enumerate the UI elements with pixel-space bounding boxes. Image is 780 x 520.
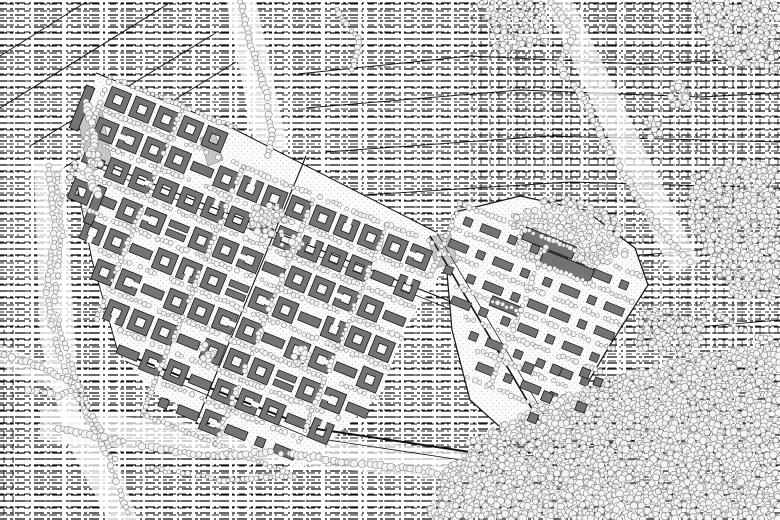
street-tree <box>188 295 192 299</box>
forest-tree <box>729 379 734 384</box>
forest-tree <box>542 450 550 458</box>
forest-tree <box>536 35 540 39</box>
forest-tree <box>534 9 539 14</box>
street-tree <box>148 198 153 203</box>
street-tree <box>235 161 239 165</box>
hedgerow-tree <box>343 21 349 27</box>
forest-tree <box>679 321 685 327</box>
street-tree <box>320 384 324 388</box>
street-tree <box>521 304 525 308</box>
hedgerow-tree <box>639 202 646 209</box>
forest-tree <box>557 503 564 510</box>
forest-tree <box>757 498 762 503</box>
street-tree <box>543 377 547 381</box>
forest-tree <box>612 410 617 415</box>
street-tree <box>357 388 363 394</box>
forest-tree <box>774 288 780 294</box>
street-tree <box>153 201 157 205</box>
street-tree <box>298 400 303 405</box>
grove-tree <box>291 234 296 239</box>
forest-tree <box>731 254 738 261</box>
forest-tree <box>752 237 758 243</box>
hedgerow-tree <box>180 471 185 476</box>
hedgerow-tree <box>55 273 60 278</box>
forest-tree <box>697 371 703 377</box>
forest-tree <box>672 515 679 520</box>
hedgerow-tree <box>354 44 360 50</box>
street-tree <box>304 424 310 430</box>
street-tree <box>219 404 224 409</box>
forest-tree <box>751 362 756 367</box>
masterplan-screenshot <box>0 0 780 520</box>
street-tree <box>77 169 81 173</box>
hedgerow-tree <box>56 322 60 326</box>
forest-tree <box>505 436 510 441</box>
street-tree <box>373 361 378 366</box>
forest-tree <box>775 375 780 382</box>
hedgerow-tree <box>83 409 89 415</box>
street-tree <box>284 265 288 269</box>
forest-tree <box>567 233 574 240</box>
forest-tree <box>767 469 772 474</box>
street-tree <box>501 302 505 306</box>
forest-tree <box>504 13 509 18</box>
grove-tree <box>656 130 662 136</box>
street-tree <box>534 372 537 375</box>
forest-tree <box>457 466 461 470</box>
street-tree <box>327 363 333 369</box>
forest-tree <box>760 51 765 56</box>
forest-tree <box>755 429 761 435</box>
hedgerow-tree <box>83 396 88 401</box>
street-tree <box>98 178 102 182</box>
forest-tree <box>561 470 569 478</box>
forest-tree <box>653 344 659 350</box>
street-tree <box>581 252 585 256</box>
street-tree <box>531 232 535 236</box>
forest-tree <box>716 372 721 377</box>
street-tree <box>213 232 217 236</box>
street-tree <box>250 168 254 172</box>
street-tree <box>306 405 310 409</box>
street-tree <box>244 273 249 278</box>
hedgerow-tree <box>58 238 62 242</box>
street-tree <box>365 268 371 274</box>
forest-tree <box>626 474 633 481</box>
forest-tree <box>543 29 548 34</box>
forest-tree <box>548 219 552 223</box>
street-tree <box>380 235 384 239</box>
street-tree <box>494 244 499 249</box>
forest-tree <box>518 12 524 18</box>
street-tree <box>518 308 523 313</box>
street-tree <box>291 434 295 438</box>
street-tree <box>226 300 230 304</box>
grove-tree <box>648 116 654 122</box>
street-tree <box>560 328 565 333</box>
hedgerow-tree <box>63 345 69 351</box>
forest-tree <box>540 406 546 412</box>
hedgerow-tree <box>66 358 70 362</box>
forest-tree <box>542 508 546 512</box>
forest-tree <box>775 190 780 197</box>
forest-tree <box>677 351 683 357</box>
forest-tree <box>764 31 769 36</box>
street-tree <box>266 306 272 312</box>
forest-tree <box>766 178 771 183</box>
street-tree <box>461 257 465 261</box>
street-tree <box>298 227 303 232</box>
forest-tree <box>776 503 780 509</box>
forest-tree <box>525 30 529 34</box>
street-tree <box>133 220 137 224</box>
forest-tree <box>776 231 780 235</box>
street-tree <box>230 232 234 236</box>
forest-tree <box>679 476 684 481</box>
forest-tree <box>540 15 546 21</box>
street-tree <box>150 342 155 347</box>
forest-tree <box>774 279 779 284</box>
forest-tree <box>547 474 554 481</box>
forest-tree <box>641 420 646 425</box>
street-tree <box>336 415 341 420</box>
forest-tree <box>447 508 452 513</box>
street-tree <box>410 267 415 272</box>
street-tree <box>135 228 139 232</box>
forest-tree <box>768 374 774 380</box>
street-tree <box>611 346 616 351</box>
forest-tree <box>700 208 705 213</box>
forest-tree <box>617 383 623 389</box>
forest-tree <box>565 464 571 470</box>
street-tree <box>538 345 542 349</box>
street-tree <box>287 289 292 294</box>
street-tree <box>122 80 128 86</box>
street-tree <box>227 266 232 271</box>
forest-tree <box>577 515 583 520</box>
hedgerow-tree <box>123 504 128 509</box>
hedgerow-tree <box>607 149 613 155</box>
forest-tree <box>554 480 559 485</box>
street-tree <box>455 211 459 215</box>
street-tree <box>295 186 299 190</box>
street-tree <box>593 256 598 261</box>
forest-tree <box>744 20 749 25</box>
street-tree <box>464 315 468 319</box>
forest-tree <box>617 453 623 459</box>
street-tree <box>259 384 265 390</box>
forest-tree <box>716 257 722 263</box>
street-tree <box>526 400 530 404</box>
street-tree <box>341 332 345 336</box>
street-tree <box>275 289 280 294</box>
street-tree <box>495 300 500 305</box>
street-tree <box>358 353 363 358</box>
street-tree <box>267 464 272 469</box>
forest-tree <box>640 512 645 517</box>
street-tree <box>197 270 201 274</box>
street-tree <box>223 228 227 232</box>
forest-tree <box>752 255 758 261</box>
street-tree <box>220 425 225 430</box>
forest-tree <box>683 347 689 353</box>
forest-tree <box>762 36 768 42</box>
forest-tree <box>640 385 645 390</box>
forest-tree <box>722 50 726 54</box>
hedgerow-tree <box>229 477 234 482</box>
forest-tree <box>588 470 593 475</box>
forest-tree <box>519 514 527 520</box>
street-tree <box>469 233 473 237</box>
grove-tree <box>281 217 287 223</box>
forest-tree <box>746 514 752 520</box>
street-tree <box>213 441 217 445</box>
street-tree <box>206 221 210 225</box>
street-tree <box>160 133 163 136</box>
forest-tree <box>451 461 457 467</box>
forest-tree <box>728 204 732 208</box>
forest-tree <box>749 273 754 278</box>
street-tree <box>270 298 274 302</box>
forest-tree <box>562 485 566 489</box>
forest-tree <box>443 495 450 502</box>
street-tree <box>638 273 643 278</box>
street-tree <box>357 248 361 252</box>
street-tree <box>174 425 179 430</box>
forest-tree <box>759 62 764 67</box>
street-tree <box>362 281 366 285</box>
forest-tree <box>474 444 481 451</box>
forest-tree <box>768 187 773 192</box>
street-tree <box>436 251 442 257</box>
forest-tree <box>580 236 586 242</box>
hedgerow-tree <box>264 94 270 100</box>
street-tree <box>477 237 481 241</box>
forest-tree <box>762 257 766 261</box>
forest-tree <box>769 236 773 240</box>
forest-tree <box>497 0 502 5</box>
forest-tree <box>552 195 557 200</box>
street-tree <box>102 180 107 185</box>
street-tree <box>457 201 462 206</box>
forest-tree <box>667 489 673 495</box>
forest-tree <box>747 397 754 404</box>
hedgerow-tree <box>196 452 202 458</box>
street-tree <box>129 155 134 160</box>
hedgerow-tree <box>734 326 739 331</box>
forest-tree <box>520 438 527 445</box>
hedgerow-tree <box>387 463 394 470</box>
forest-tree <box>666 401 672 407</box>
forest-tree <box>750 369 756 375</box>
forest-tree <box>624 425 628 429</box>
forest-tree <box>490 0 495 5</box>
forest-tree <box>655 489 661 495</box>
street-tree <box>486 297 491 302</box>
street-tree <box>345 207 349 211</box>
hedgerow-tree <box>57 318 62 323</box>
hedgerow-tree <box>267 448 273 454</box>
street-tree <box>494 367 499 372</box>
street-tree <box>146 303 151 308</box>
forest-tree <box>696 193 700 197</box>
forest-tree <box>554 514 558 518</box>
hedgerow-tree <box>57 206 61 210</box>
street-tree <box>578 333 582 337</box>
street-tree <box>255 340 259 344</box>
street-tree <box>141 408 146 413</box>
forest-tree <box>519 40 525 46</box>
street-tree <box>180 282 184 286</box>
street-tree <box>278 282 282 286</box>
forest-tree <box>599 224 603 228</box>
street-tree <box>375 395 379 399</box>
street-tree <box>307 370 311 374</box>
forest-tree <box>675 492 679 496</box>
forest-tree <box>493 465 498 470</box>
forest-tree <box>431 500 436 505</box>
forest-tree <box>642 345 648 351</box>
street-tree <box>205 364 210 369</box>
forest-tree <box>540 466 548 474</box>
street-tree <box>165 144 169 148</box>
street-tree <box>206 438 211 443</box>
street-tree <box>173 173 178 178</box>
street-tree <box>383 293 387 297</box>
street-tree <box>152 176 156 180</box>
street-tree <box>498 353 503 358</box>
street-tree <box>196 324 200 328</box>
forest-tree <box>611 443 616 448</box>
forest-tree <box>650 334 654 338</box>
forest-tree <box>774 219 780 225</box>
street-tree <box>137 194 142 199</box>
forest-tree <box>477 461 482 466</box>
forest-tree <box>471 513 476 518</box>
forest-tree <box>743 5 749 11</box>
street-tree <box>179 174 184 179</box>
forest-tree <box>527 221 531 225</box>
hedgerow-tree <box>185 471 191 477</box>
street-tree <box>255 420 259 424</box>
hedgerow-tree <box>55 185 59 189</box>
street-tree <box>282 323 287 328</box>
street-tree <box>412 305 416 309</box>
hedgerow-tree <box>58 214 62 218</box>
street-tree <box>465 260 469 264</box>
forest-tree <box>673 311 678 316</box>
street-tree <box>272 284 276 288</box>
forest-tree <box>687 407 691 411</box>
street-tree <box>220 420 224 424</box>
forest-tree <box>539 457 544 462</box>
forest-tree <box>727 40 731 44</box>
hedgerow-tree <box>55 190 60 195</box>
street-tree <box>107 254 111 258</box>
hedgerow-tree <box>293 474 297 478</box>
forest-tree <box>557 448 563 454</box>
forest-tree <box>572 214 579 221</box>
forest-tree <box>608 452 613 457</box>
grove-tree <box>85 151 91 157</box>
street-tree <box>263 462 268 467</box>
forest-tree <box>655 394 659 398</box>
forest-tree <box>732 41 736 45</box>
street-tree <box>102 251 107 256</box>
street-tree <box>271 320 276 325</box>
forest-tree <box>723 489 728 494</box>
street-tree <box>320 267 326 273</box>
street-tree <box>65 179 70 184</box>
street-tree <box>337 239 342 244</box>
street-tree <box>536 261 542 267</box>
forest-tree <box>762 179 766 183</box>
street-tree <box>534 344 539 349</box>
street-tree <box>505 305 509 309</box>
street-tree <box>618 294 622 298</box>
street-tree <box>352 307 356 311</box>
hedgerow-tree <box>86 404 91 409</box>
hedgerow-tree <box>240 8 245 13</box>
forest-tree <box>752 5 757 10</box>
forest-tree <box>549 426 554 431</box>
forest-tree <box>616 516 622 520</box>
forest-tree <box>710 435 717 442</box>
hedgerow-tree <box>55 373 61 379</box>
street-tree <box>200 396 203 399</box>
street-tree <box>172 339 175 342</box>
forest-tree <box>709 15 716 22</box>
forest-tree <box>673 334 679 340</box>
street-tree <box>491 375 496 380</box>
street-tree <box>521 398 526 403</box>
hedgerow-tree <box>60 233 65 239</box>
forest-tree <box>659 478 665 484</box>
street-tree <box>207 400 211 404</box>
hedgerow-tree <box>86 418 90 422</box>
street-tree <box>142 159 145 162</box>
forest-tree <box>715 242 719 246</box>
street-tree <box>152 170 158 176</box>
street-tree <box>487 324 491 328</box>
street-tree <box>370 395 374 399</box>
forest-tree <box>572 461 577 466</box>
forest-tree <box>715 246 722 253</box>
forest-tree <box>721 405 727 411</box>
grove-tree <box>254 204 261 211</box>
forest-tree <box>736 361 743 368</box>
forest-tree <box>674 479 680 485</box>
street-tree <box>214 437 218 441</box>
street-tree <box>310 198 314 202</box>
forest-tree <box>718 52 722 56</box>
street-tree <box>473 236 477 240</box>
forest-tree <box>561 433 567 439</box>
street-tree <box>582 336 586 340</box>
forest-tree <box>690 193 696 199</box>
street-tree <box>131 85 135 89</box>
forest-tree <box>572 222 577 227</box>
forest-tree <box>757 202 764 209</box>
forest-tree <box>576 494 582 500</box>
forest-tree <box>705 373 710 378</box>
street-tree <box>136 336 141 341</box>
street-tree <box>251 241 255 245</box>
hedgerow-tree <box>55 263 61 269</box>
street-tree <box>521 282 525 286</box>
street-tree <box>292 186 296 190</box>
forest-tree <box>739 505 743 509</box>
